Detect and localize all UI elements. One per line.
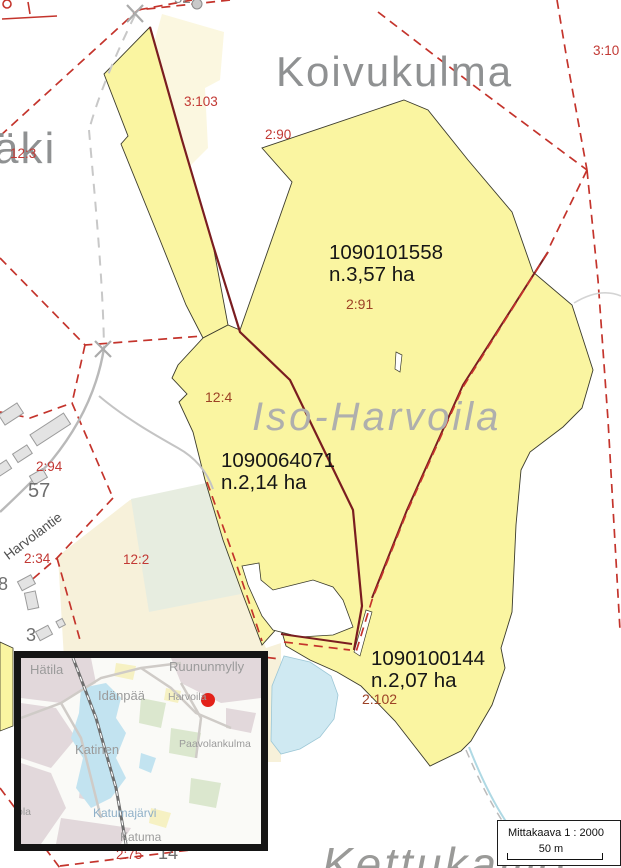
parcel-area: n.3,57 ha bbox=[329, 264, 443, 286]
parcel-label-1090101558: 1090101558 n.3,57 ha bbox=[329, 242, 443, 285]
parcel-area: n.2,07 ha bbox=[371, 670, 485, 692]
unit-label-2-102: 2:102 bbox=[362, 692, 397, 707]
region-name-koivukulma: Koivukulma bbox=[276, 50, 513, 94]
unit-label-2-91: 2:91 bbox=[346, 297, 373, 312]
inset-place-idanpaa: Idänpää bbox=[98, 688, 145, 703]
area-name-iso-harvoila: Iso-Harvoila bbox=[252, 396, 501, 438]
inset-place-ruununmylly: Ruununmylly bbox=[169, 659, 244, 674]
cadastral-map-view: Koivukulma äki Iso-Harvoila Kettukallio … bbox=[0, 0, 621, 868]
inset-place-hatila: Hätila bbox=[30, 662, 63, 677]
parcel-id: 1090101558 bbox=[329, 242, 443, 264]
overview-inset-map: Hätila Ruununmylly Idänpää Harvoila Paav… bbox=[14, 651, 268, 851]
parcel-label-1090100144: 1090100144 n.2,07 ha bbox=[371, 648, 485, 691]
unit-label-3-103: 3:103 bbox=[184, 95, 218, 109]
number-label-57: 57 bbox=[28, 481, 50, 502]
parcel-id: 1090100144 bbox=[371, 648, 485, 670]
unit-label-12-3: 12:3 bbox=[10, 147, 36, 161]
unit-label-2-94: 2:94 bbox=[36, 460, 62, 474]
parcel-label-1090064071: 1090064071 n.2,14 ha bbox=[221, 450, 335, 493]
label-top-partial: 52 bbox=[174, 0, 191, 7]
number-label-8: 8 bbox=[0, 575, 8, 594]
survey-marks bbox=[2, 0, 57, 19]
unit-label-12-2: 12:2 bbox=[123, 553, 149, 567]
inset-lake-katumajarvi: Katumajärvi bbox=[93, 806, 156, 820]
inset-place-katuma: Katuma bbox=[120, 830, 161, 844]
scale-title: Mittakaava 1 : 2000 bbox=[508, 827, 604, 839]
scale-box: Mittakaava 1 : 2000 50 m bbox=[497, 820, 621, 866]
parcel-yellow-left-edge bbox=[0, 642, 13, 731]
unit-label-3-10: 3:10 bbox=[593, 44, 619, 58]
parcel-area: n.2,14 ha bbox=[221, 472, 335, 494]
inset-place-harvoila: Harvoila bbox=[168, 691, 207, 703]
scale-bar bbox=[507, 853, 603, 860]
pond bbox=[271, 656, 338, 754]
inset-place-paavolankulma: Paavolankulma bbox=[179, 738, 251, 750]
survey-point-icon bbox=[192, 0, 202, 9]
unit-label-2-34: 2:34 bbox=[24, 552, 50, 566]
unit-label-2-90: 2:90 bbox=[265, 128, 291, 142]
unit-label-12-4: 12:4 bbox=[205, 390, 232, 405]
inset-place-ola-partial: ola bbox=[17, 806, 31, 818]
inset-place-katinen: Katinen bbox=[75, 742, 119, 757]
parcel-id: 1090064071 bbox=[221, 450, 335, 472]
inset-green-areas bbox=[139, 698, 221, 808]
number-label-3: 3 bbox=[26, 626, 36, 645]
